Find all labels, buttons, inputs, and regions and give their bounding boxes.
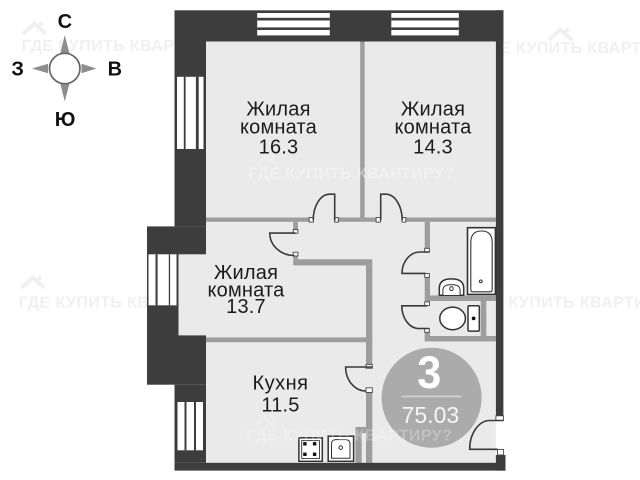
svg-text:комната: комната bbox=[394, 117, 472, 139]
svg-text:Кухня: Кухня bbox=[252, 373, 308, 395]
svg-text:13.7: 13.7 bbox=[226, 296, 266, 318]
svg-text:16.3: 16.3 bbox=[259, 136, 299, 158]
svg-text:ГДЕ КУПИТЬ КВАРТИРУ?: ГДЕ КУПИТЬ КВАРТИРУ? bbox=[246, 428, 452, 445]
svg-text:С: С bbox=[58, 11, 72, 33]
svg-text:комната: комната bbox=[240, 117, 318, 139]
svg-text:75.03: 75.03 bbox=[402, 402, 460, 428]
svg-text:11.5: 11.5 bbox=[261, 394, 299, 416]
svg-text:3: 3 bbox=[417, 347, 441, 398]
svg-text:Ю: Ю bbox=[55, 109, 76, 131]
svg-text:ГДЕ КУПИТЬ КВАРТИРУ?: ГДЕ КУПИТЬ КВАРТИРУ? bbox=[249, 166, 455, 183]
svg-text:З: З bbox=[11, 59, 24, 81]
svg-text:В: В bbox=[108, 58, 122, 80]
svg-text:14.3: 14.3 bbox=[413, 136, 453, 158]
